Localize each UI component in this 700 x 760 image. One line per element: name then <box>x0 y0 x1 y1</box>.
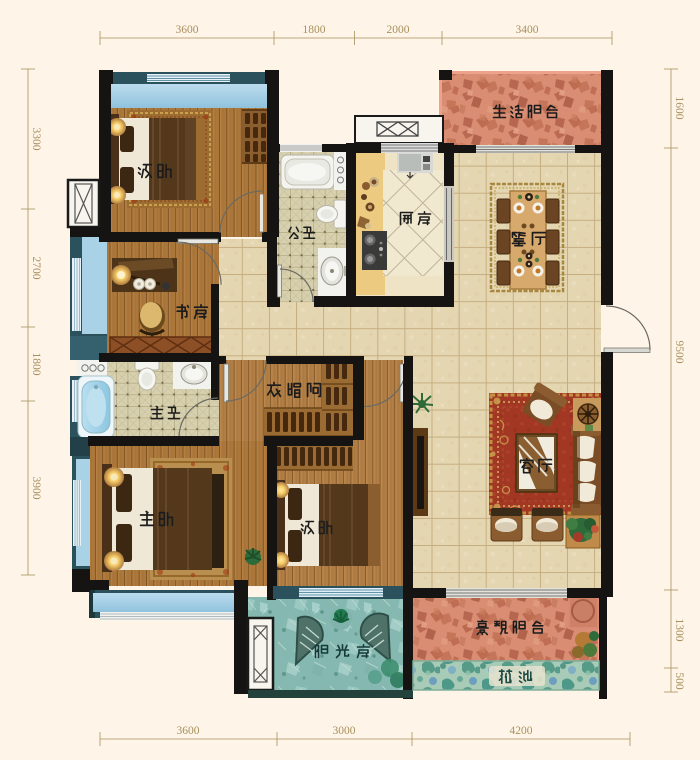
svg-text:2700: 2700 <box>30 257 42 280</box>
svg-text:3600: 3600 <box>176 24 199 36</box>
svg-text:3900: 3900 <box>30 477 42 500</box>
svg-text:500: 500 <box>673 672 685 690</box>
svg-text:1800: 1800 <box>30 353 42 376</box>
svg-text:3000: 3000 <box>333 725 356 737</box>
svg-text:3600: 3600 <box>177 725 200 737</box>
svg-text:1600: 1600 <box>673 97 685 120</box>
svg-text:3400: 3400 <box>516 24 539 36</box>
svg-text:1300: 1300 <box>673 619 685 642</box>
svg-text:4200: 4200 <box>510 725 533 737</box>
svg-text:2000: 2000 <box>387 24 410 36</box>
svg-text:1800: 1800 <box>303 24 326 36</box>
svg-text:3300: 3300 <box>30 128 42 151</box>
svg-text:9500: 9500 <box>673 341 685 364</box>
